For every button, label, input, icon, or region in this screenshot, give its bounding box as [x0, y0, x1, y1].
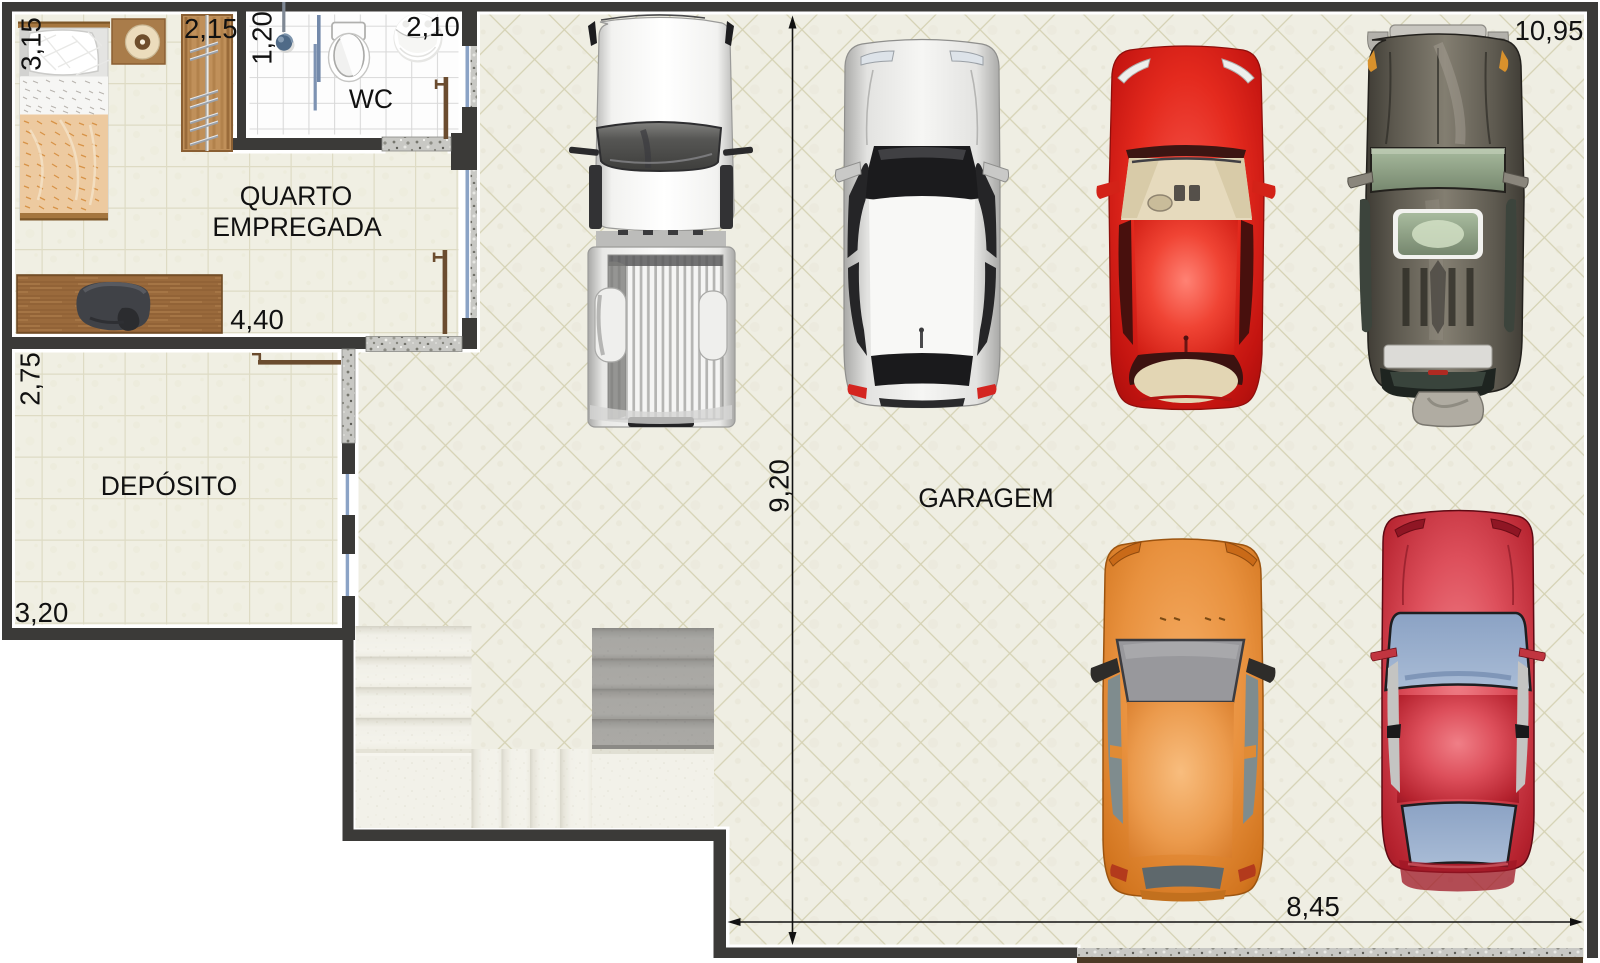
svg-text:3,20: 3,20 [15, 597, 69, 628]
svg-text:1,20: 1,20 [247, 11, 278, 65]
svg-text:DEPÓSITO: DEPÓSITO [101, 471, 237, 501]
svg-text:2,75: 2,75 [15, 352, 46, 406]
svg-text:2,15: 2,15 [184, 13, 238, 44]
svg-text:2,10: 2,10 [406, 11, 460, 42]
svg-text:9,20: 9,20 [764, 459, 795, 513]
svg-text:8,45: 8,45 [1286, 891, 1340, 922]
svg-text:EMPREGADA: EMPREGADA [212, 212, 382, 242]
svg-text:GARAGEM: GARAGEM [918, 483, 1053, 513]
svg-text:QUARTO: QUARTO [240, 181, 352, 211]
svg-text:WC: WC [349, 84, 393, 114]
svg-text:4,40: 4,40 [230, 304, 284, 335]
svg-text:3,15: 3,15 [16, 17, 47, 71]
svg-text:10,95: 10,95 [1515, 15, 1584, 46]
